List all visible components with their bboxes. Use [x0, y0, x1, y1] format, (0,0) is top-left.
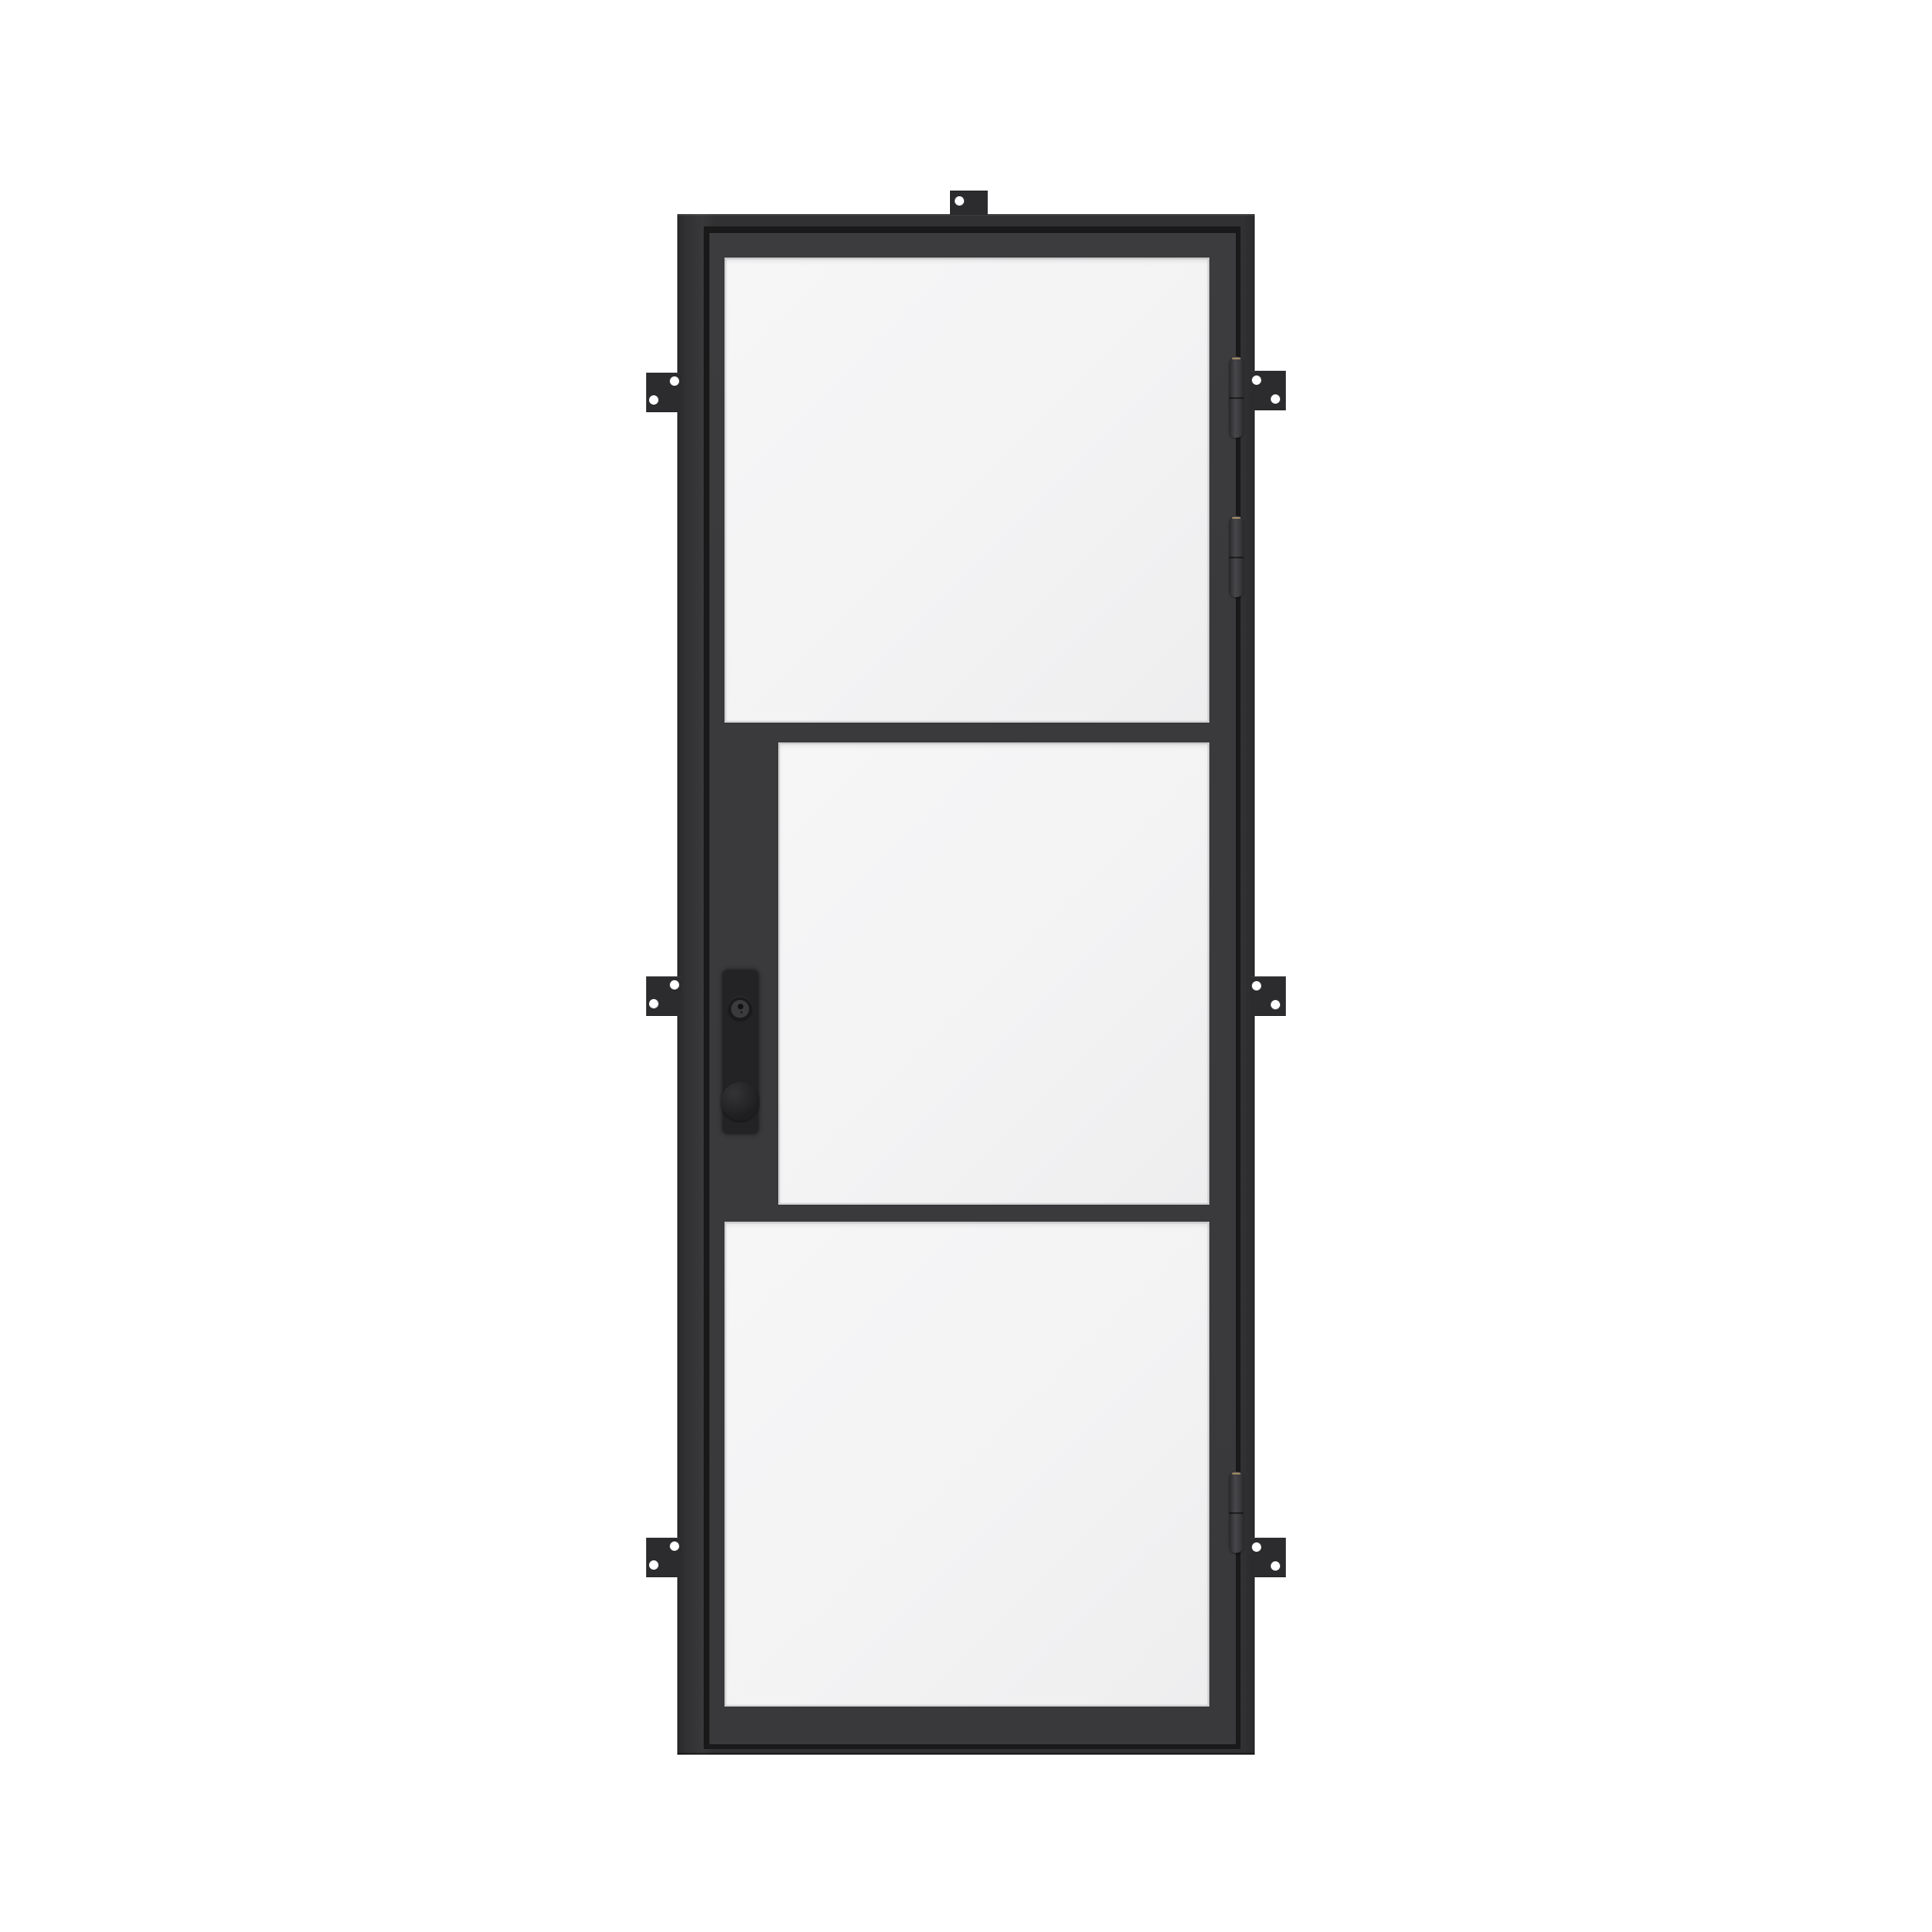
mounting-bracket-right: [1251, 1538, 1286, 1577]
glass-panel-top: [724, 258, 1209, 723]
lock-cylinder: [727, 996, 753, 1022]
screw-hole: [1271, 394, 1280, 404]
screw-hole: [955, 196, 964, 206]
mortise-lock-plate: [722, 969, 759, 1135]
screw-hole: [1252, 375, 1261, 385]
door-unit: [677, 214, 1255, 1755]
glass-panel-middle: [778, 742, 1209, 1205]
screw-hole: [1252, 981, 1261, 991]
screw-hole: [1271, 1000, 1280, 1009]
mounting-bracket-left: [646, 1538, 681, 1577]
screw-hole: [649, 999, 658, 1008]
screw-hole: [1271, 1561, 1280, 1571]
mounting-bracket-left: [646, 976, 681, 1016]
screw-hole: [649, 1560, 658, 1570]
hinge: [1229, 516, 1243, 597]
glass-panel-bottom: [724, 1222, 1209, 1707]
product-image-canvas: [0, 0, 1932, 1932]
door-knob: [721, 1082, 759, 1121]
screw-hole: [1252, 1542, 1261, 1552]
hinge: [1229, 1472, 1243, 1553]
screw-hole: [670, 1541, 679, 1551]
screw-hole: [649, 395, 658, 405]
door-slab: [709, 233, 1236, 1744]
mounting-bracket-left: [646, 373, 681, 412]
hinge: [1229, 357, 1243, 438]
mounting-bracket-right: [1251, 976, 1286, 1016]
mounting-bracket-right: [1251, 371, 1286, 410]
top-mounting-tab: [950, 191, 988, 215]
screw-hole: [670, 980, 679, 990]
screw-hole: [670, 376, 679, 386]
